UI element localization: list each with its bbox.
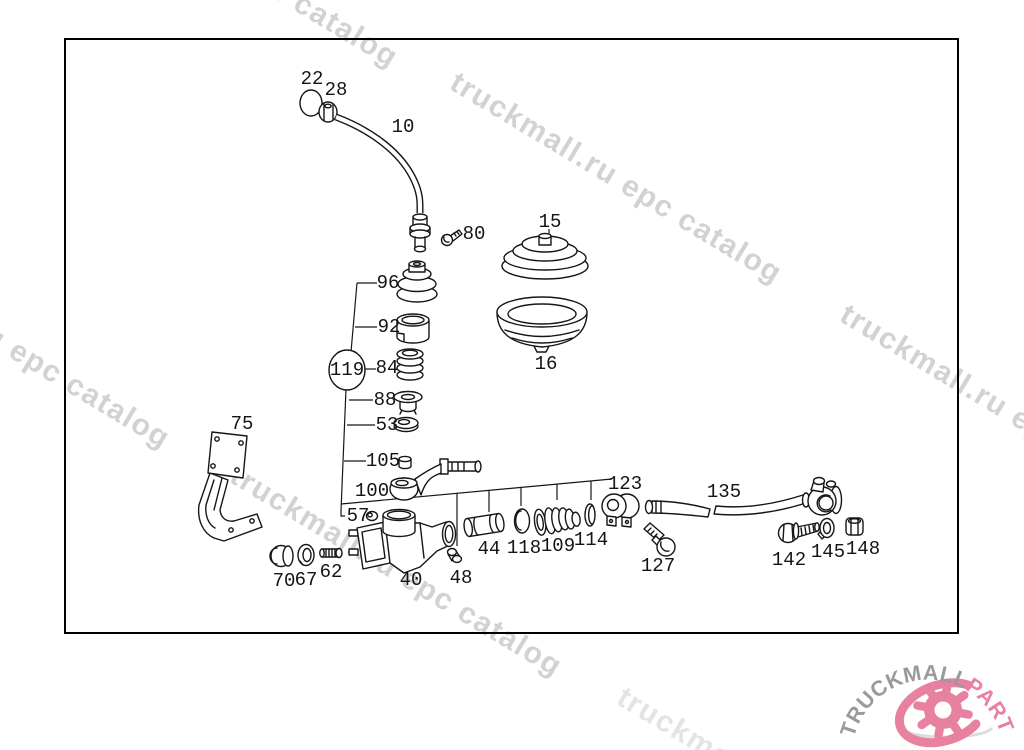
part-label-75: 75 (231, 413, 254, 435)
part-label-15: 15 (539, 211, 562, 233)
watermarks: truckmall.ru epc catalog truckmall.ru ep… (0, 0, 1024, 750)
part-label-44: 44 (478, 538, 501, 560)
part-label-57: 57 (347, 505, 370, 527)
part-148-nut (846, 518, 863, 535)
part-label-80: 80 (463, 223, 486, 245)
part-label-70: 70 (273, 570, 296, 592)
part-10-rod (336, 117, 430, 252)
part-label-145: 145 (811, 541, 845, 563)
part-67-washer (298, 545, 314, 566)
part-label-123: 123 (608, 473, 642, 495)
part-label-22: 22 (301, 68, 324, 90)
watermark-text: truckmall.ru epc catalog (444, 66, 788, 291)
part-label-148: 148 (846, 538, 880, 560)
part-label-96: 96 (377, 272, 400, 294)
parts-diagram: truckmall.ru epc catalog truckmall.ru ep… (0, 0, 1024, 750)
part-label-28: 28 (325, 79, 348, 101)
part-80-bolt (442, 230, 463, 246)
part-135-joint (808, 478, 842, 516)
part-label-142: 142 (772, 549, 806, 571)
part-145-washer (818, 519, 834, 540)
part-label-62: 62 (320, 561, 343, 583)
watermark-text: truckmall.ru epc catalog (0, 231, 176, 456)
part-123-clamp (602, 494, 639, 527)
part-label-127: 127 (641, 555, 675, 577)
part-label-88: 88 (374, 389, 397, 411)
part-label-10: 10 (392, 116, 415, 138)
part-48-plug (448, 549, 462, 563)
part-label-48: 48 (450, 567, 473, 589)
part-15-boot-upper (502, 234, 588, 280)
watermark-text: truckmall.ru epc catalog (60, 0, 404, 74)
part-135-rod (646, 478, 842, 518)
part-label-109: 109 (541, 535, 575, 557)
part-label-119: 119 (330, 359, 364, 381)
part-label-118: 118 (507, 537, 541, 559)
part-label-67: 67 (295, 569, 318, 591)
part-label-114: 114 (574, 529, 608, 551)
part-label-135: 135 (707, 481, 741, 503)
watermark-text: truckmall.ru epc catalog (834, 298, 1024, 523)
part-label-105: 105 (366, 450, 400, 472)
part-70-nut (270, 546, 293, 567)
part-62-bolt (320, 549, 342, 558)
part-16-boot-lower (497, 297, 587, 352)
part-label-40: 40 (400, 569, 423, 591)
part-label-100: 100 (355, 480, 389, 502)
part-114-ring (585, 504, 595, 526)
part-84-spring (397, 349, 423, 380)
truckmall-logo: TRUCKMALLPARTS (836, 619, 1019, 743)
part-label-84: 84 (376, 357, 399, 379)
part-92-bushing (397, 314, 429, 343)
part-142-bolt (779, 523, 820, 543)
part-88-bushing (394, 392, 422, 415)
part-44-bushing (463, 513, 505, 537)
part-28-nut (319, 102, 337, 122)
part-105-cap (399, 456, 411, 468)
part-label-53: 53 (376, 414, 399, 436)
page: truckmall.ru epc catalog truckmall.ru ep… (0, 0, 1024, 750)
part-127-bolt (644, 523, 675, 556)
part-118-seal (515, 509, 530, 533)
part-96-boot (397, 261, 437, 302)
part-label-16: 16 (535, 353, 558, 375)
part-label-92: 92 (378, 316, 401, 338)
